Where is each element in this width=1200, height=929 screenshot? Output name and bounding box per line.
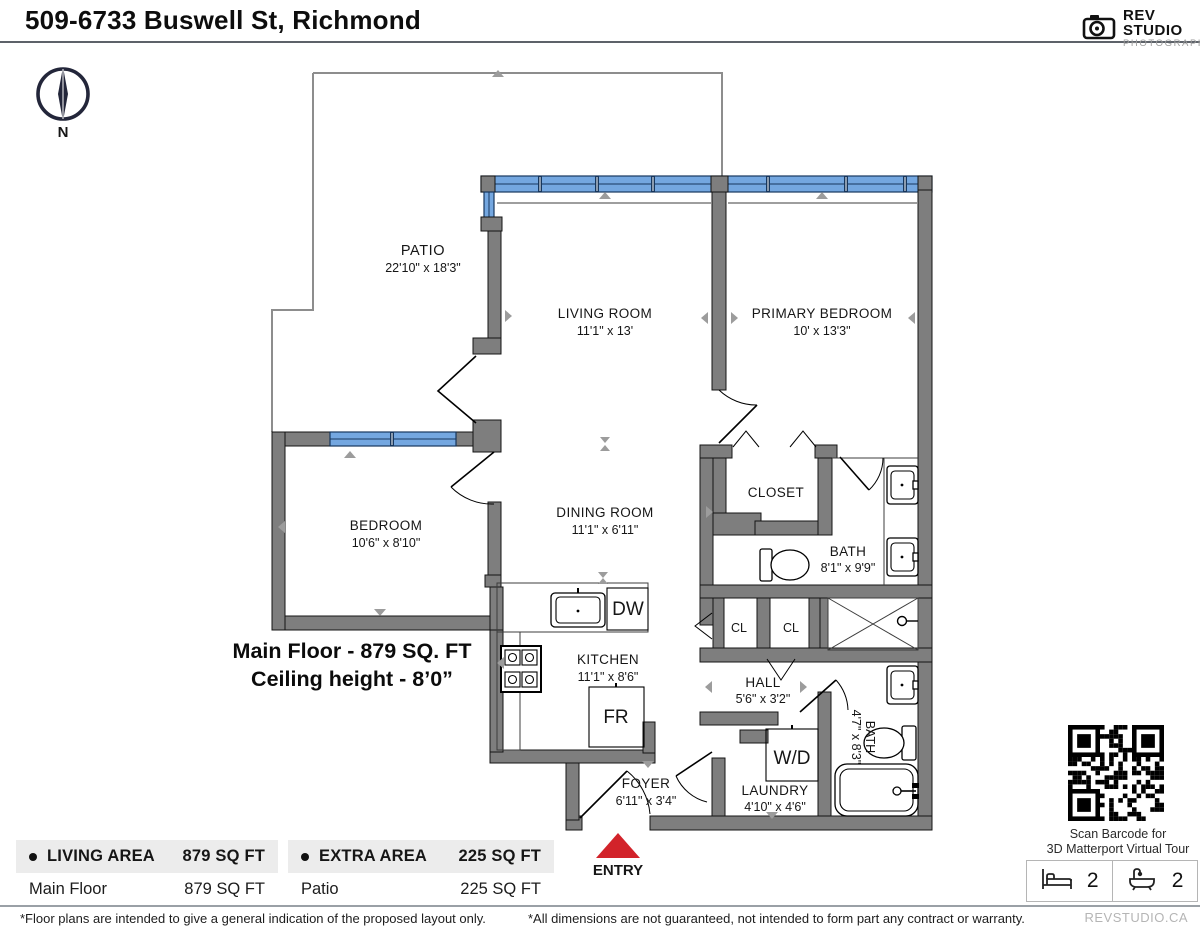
kitchen-label: KITCHEN (577, 652, 639, 667)
extra-area-total: 225 SQ FT (459, 847, 542, 866)
extra-area-table: EXTRA AREA 225 SQ FT Patio 225 SQ FT (288, 840, 554, 906)
extra-area-row-value: 225 SQ FT (460, 880, 541, 899)
extra-area-header: EXTRA AREA 225 SQ FT (288, 840, 554, 873)
baths-cell: 2 (1112, 861, 1198, 901)
footer-disclaimer-left: *Floor plans are intended to give a gene… (20, 911, 486, 926)
wd-label: W/D (774, 748, 811, 769)
qr-caption-line2: 3D Matterport Virtual Tour (1032, 842, 1200, 857)
bath2-sink (887, 666, 918, 704)
cl1-label: CL (731, 621, 747, 635)
extra-area-row-label: Patio (301, 880, 339, 899)
hall-dims: 5'6" x 3'2" (736, 692, 791, 706)
entry-label: ENTRY (593, 862, 643, 879)
bathtub (835, 764, 919, 816)
bed-bath-stats: 2 2 (1026, 860, 1198, 902)
shower (828, 598, 918, 650)
laundry-door (676, 752, 712, 776)
bedroom-dims: 10'6" x 8'10" (352, 536, 421, 550)
living-area-title: LIVING AREA (47, 847, 155, 866)
dining-room-dims: 11'1" x 6'11" (572, 523, 639, 537)
living-room-label: LIVING ROOM (558, 306, 652, 321)
patio-label: PATIO (401, 243, 445, 259)
beds-count: 2 (1087, 869, 1099, 893)
stove (501, 646, 541, 692)
bath-icon (1126, 866, 1158, 897)
living-area-row-value: 879 SQ FT (184, 880, 265, 899)
entry-marker: ENTRY (593, 833, 643, 879)
walls (272, 176, 932, 830)
bath1-sink-2 (887, 538, 918, 576)
foyer-label: FOYER (622, 776, 671, 791)
dining-room-label: DINING ROOM (556, 505, 653, 520)
bath1-sink-1 (887, 466, 918, 504)
qr-caption: Scan Barcode for 3D Matterport Virtual T… (1032, 827, 1200, 857)
kitchen-dims: 11'1" x 8'6" (578, 670, 639, 684)
fr-label: FR (603, 707, 628, 728)
bedroom-door (451, 452, 494, 487)
floor-summary-line1: Main Floor - 879 SQ. FT (233, 639, 472, 663)
closet-door-chevron-1 (733, 431, 759, 447)
primary-bedroom-dims: 10' x 13'3" (793, 324, 850, 338)
closet-door-chevron-2 (790, 431, 816, 447)
baths-count: 2 (1172, 869, 1184, 893)
bath2-label: BATH (863, 721, 877, 753)
floor-plan-svg: PATIO 22'10" x 18'3" LIVING ROOM 11'1" x… (0, 0, 1200, 929)
living-area-row: Main Floor 879 SQ FT (16, 873, 278, 906)
qr-code (1068, 725, 1164, 821)
bedroom-label: BEDROOM (350, 518, 423, 533)
qr-caption-line1: Scan Barcode for (1032, 827, 1200, 842)
bath1-dims: 8'1" x 9'9" (821, 561, 876, 575)
bath1-door (840, 457, 869, 490)
patio-door (438, 356, 476, 423)
extra-area-title: EXTRA AREA (319, 847, 427, 866)
extra-area-row: Patio 225 SQ FT (288, 873, 554, 906)
living-area-total: 879 SQ FT (183, 847, 266, 866)
primary-bedroom-label: PRIMARY BEDROOM (752, 306, 893, 321)
living-area-table: LIVING AREA 879 SQ FT Main Floor 879 SQ … (16, 840, 278, 906)
footer-disclaimer-right: *All dimensions are not guaranteed, not … (528, 911, 1025, 926)
hall-label: HALL (745, 675, 780, 690)
footer-brand: REVSTUDIO.CA (1084, 910, 1188, 925)
beds-cell: 2 (1027, 861, 1112, 901)
living-area-row-label: Main Floor (29, 880, 107, 899)
patio-dims: 22'10" x 18'3" (385, 261, 461, 275)
foyer-dims: 6'11" x 3'4" (616, 794, 677, 808)
bath1-label: BATH (830, 544, 867, 559)
laundry-label: LAUNDRY (741, 783, 808, 798)
cl2-label: CL (783, 621, 799, 635)
bed-icon (1040, 867, 1074, 896)
bullet-icon (301, 853, 309, 861)
bullet-icon (29, 853, 37, 861)
living-room-dims: 11'1" x 13' (577, 324, 633, 338)
floor-summary-line2: Ceiling height - 8’0” (251, 667, 453, 691)
bath2-dims: 4'7" x 8'3" (849, 710, 863, 765)
footer-divider (0, 905, 1200, 907)
laundry-dims: 4'10" x 4'6" (744, 800, 806, 814)
entry-arrow-icon (596, 833, 640, 858)
dw-label: DW (612, 599, 644, 620)
closet-label: CLOSET (748, 485, 804, 500)
bath1-toilet (760, 549, 809, 581)
living-area-header: LIVING AREA 879 SQ FT (16, 840, 278, 873)
